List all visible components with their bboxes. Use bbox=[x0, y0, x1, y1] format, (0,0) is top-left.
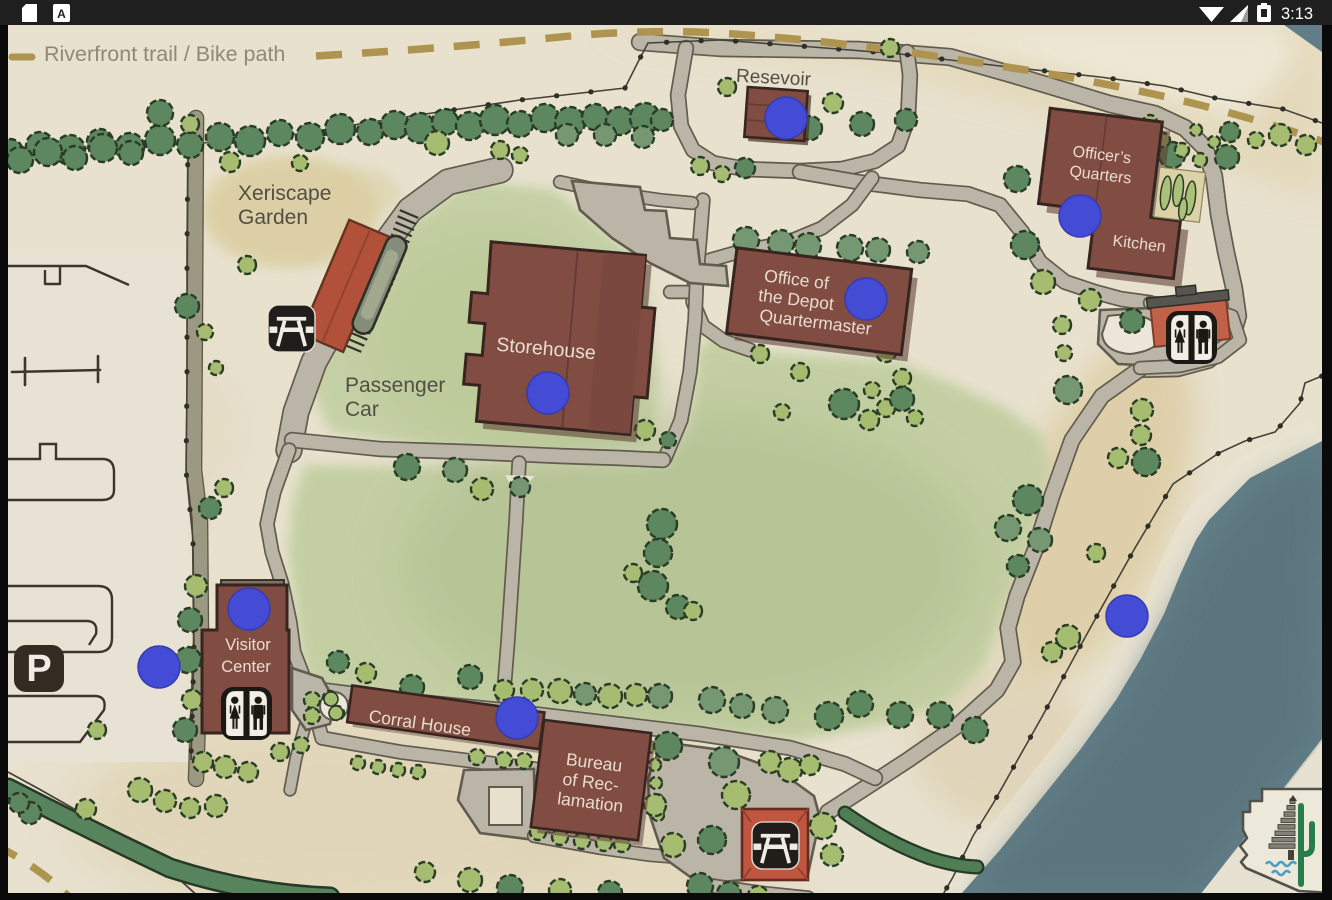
svg-text:A: A bbox=[57, 7, 66, 21]
svg-text:3:13: 3:13 bbox=[1281, 5, 1313, 23]
